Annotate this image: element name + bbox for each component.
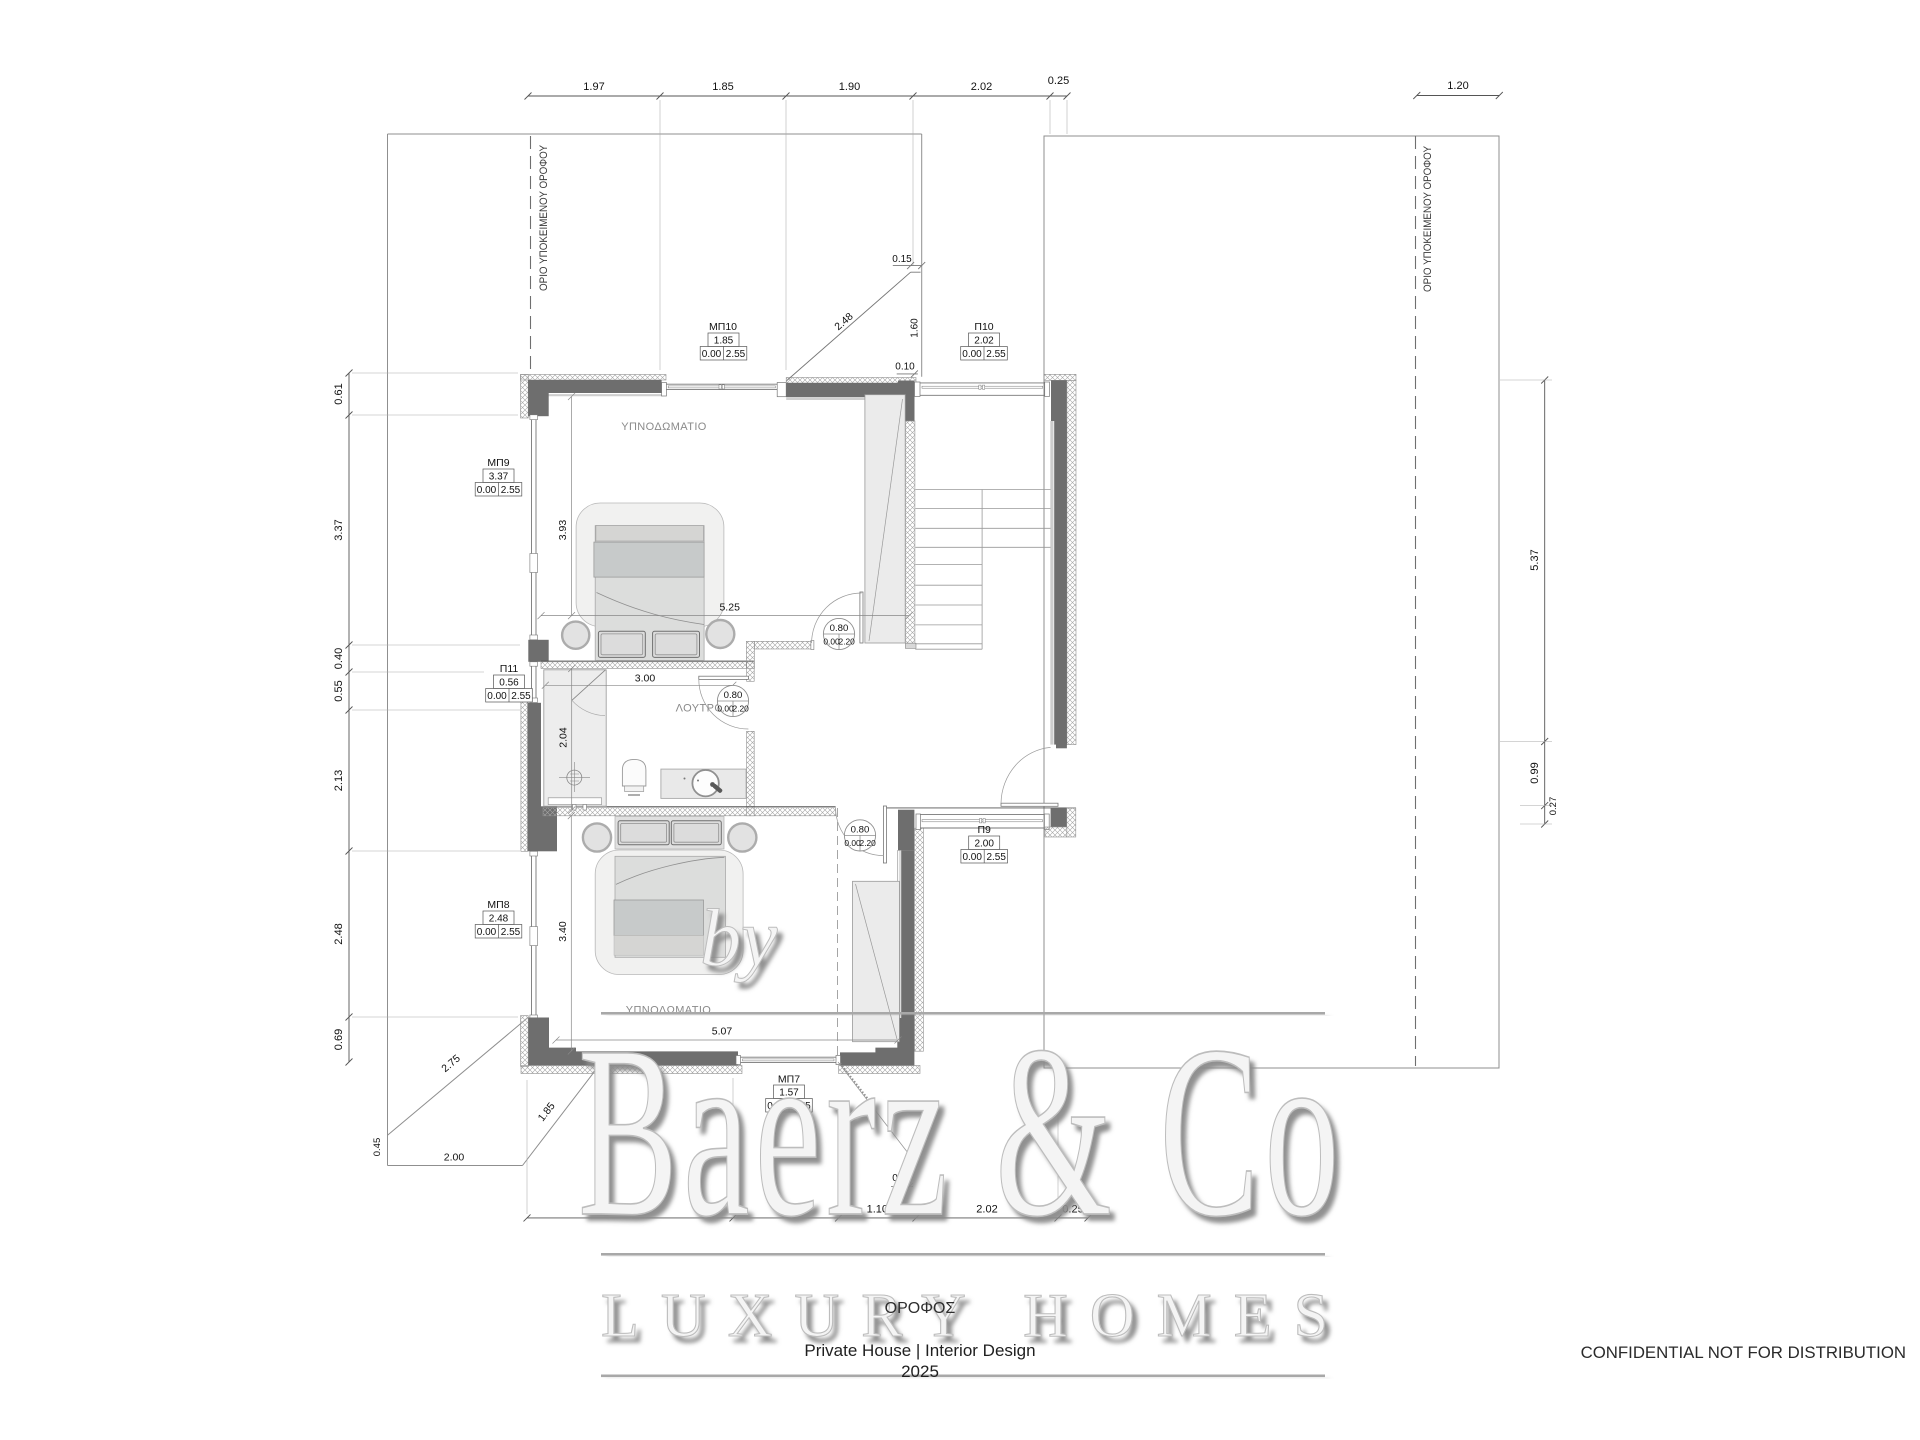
svg-text:Π10: Π10 xyxy=(974,321,993,333)
svg-text:ΟΡΙΟ ΥΠΟΚΕΙΜΕΝΟΥ ΟΡΟΦΟΥ: ΟΡΙΟ ΥΠΟΚΕΙΜΕΝΟΥ ΟΡΟΦΟΥ xyxy=(538,144,550,291)
svg-text:0.10: 0.10 xyxy=(895,362,915,373)
svg-text:0.00: 0.00 xyxy=(844,838,861,848)
svg-text:2.13: 2.13 xyxy=(333,770,345,791)
svg-text:1.97: 1.97 xyxy=(583,81,604,93)
svg-text:5.37: 5.37 xyxy=(1529,549,1541,570)
svg-text:0.00: 0.00 xyxy=(477,927,497,938)
svg-text:2.48: 2.48 xyxy=(489,914,509,925)
svg-text:3.37: 3.37 xyxy=(333,519,345,540)
svg-text:ΜΠ10: ΜΠ10 xyxy=(709,321,737,333)
svg-text:0.00: 0.00 xyxy=(823,637,840,647)
svg-text:ΛΟΥΤΡΟ: ΛΟΥΤΡΟ xyxy=(676,703,724,715)
svg-text:0.00: 0.00 xyxy=(477,485,497,496)
svg-text:1.60: 1.60 xyxy=(910,318,921,338)
svg-text:3.93: 3.93 xyxy=(557,520,569,541)
svg-text:2.48: 2.48 xyxy=(333,923,345,944)
svg-text:ΟΡΙΟ ΥΠΟΚΕΙΜΕΝΟΥ ΟΡΟΦΟΥ: ΟΡΙΟ ΥΠΟΚΕΙΜΕΝΟΥ ΟΡΟΦΟΥ xyxy=(1422,145,1434,292)
svg-text:0.99: 0.99 xyxy=(1529,762,1541,783)
svg-text:0.61: 0.61 xyxy=(333,383,345,404)
svg-text:0.00: 0.00 xyxy=(962,852,982,863)
svg-text:2.20: 2.20 xyxy=(839,637,856,647)
svg-text:ΜΠ9: ΜΠ9 xyxy=(487,457,509,469)
svg-text:0.45: 0.45 xyxy=(372,1138,383,1157)
svg-text:2.55: 2.55 xyxy=(501,927,521,938)
svg-text:1.85: 1.85 xyxy=(712,81,733,93)
svg-text:CONFIDENTIAL NOT FOR DISTRIBUT: CONFIDENTIAL NOT FOR DISTRIBUTION xyxy=(1581,1343,1906,1362)
svg-text:ΟΡΟΦΟΣ: ΟΡΟΦΟΣ xyxy=(885,1300,956,1317)
svg-text:0.40: 0.40 xyxy=(333,648,345,669)
svg-text:2.00: 2.00 xyxy=(974,839,994,850)
svg-text:0.00: 0.00 xyxy=(487,691,507,702)
svg-text:2.55: 2.55 xyxy=(986,852,1006,863)
svg-text:by: by xyxy=(700,892,778,983)
svg-text:1.90: 1.90 xyxy=(839,81,860,93)
svg-text:0.56: 0.56 xyxy=(499,678,519,689)
svg-text:3.37: 3.37 xyxy=(489,472,509,483)
svg-text:3.00: 3.00 xyxy=(635,673,656,685)
svg-text:0.80: 0.80 xyxy=(830,623,849,634)
svg-text:3.40: 3.40 xyxy=(557,921,569,942)
svg-text:2.55: 2.55 xyxy=(511,691,531,702)
svg-text:Private House | Interior Desig: Private House | Interior Design xyxy=(804,1341,1035,1360)
svg-text:0.00: 0.00 xyxy=(962,349,982,360)
svg-text:2.20: 2.20 xyxy=(733,704,750,714)
svg-text:0.15: 0.15 xyxy=(892,254,912,265)
svg-text:0.27: 0.27 xyxy=(1548,797,1559,816)
svg-text:2.55: 2.55 xyxy=(726,349,746,360)
svg-text:1.85: 1.85 xyxy=(714,336,734,347)
svg-text:Baerz & Co: Baerz & Co xyxy=(578,995,1344,1268)
svg-text:ΥΠΝΟΔΩΜΑΤΙΟ: ΥΠΝΟΔΩΜΑΤΙΟ xyxy=(621,421,707,433)
svg-text:Π9: Π9 xyxy=(977,824,991,836)
svg-text:0.00: 0.00 xyxy=(702,349,722,360)
svg-text:2.04: 2.04 xyxy=(557,727,569,748)
svg-text:0.25: 0.25 xyxy=(1048,75,1069,87)
svg-text:2.48: 2.48 xyxy=(832,310,855,333)
svg-text:2.02: 2.02 xyxy=(974,336,994,347)
svg-text:1.85: 1.85 xyxy=(536,1100,558,1124)
svg-text:Π11: Π11 xyxy=(500,663,519,675)
svg-text:2.55: 2.55 xyxy=(986,349,1006,360)
svg-text:2.00: 2.00 xyxy=(444,1152,465,1164)
svg-text:ΜΠ8: ΜΠ8 xyxy=(487,899,509,911)
svg-text:2.75: 2.75 xyxy=(439,1052,462,1074)
svg-text:0.80: 0.80 xyxy=(724,690,743,701)
svg-text:5.25: 5.25 xyxy=(719,602,740,614)
svg-text:1.20: 1.20 xyxy=(1447,80,1468,92)
svg-text:2.55: 2.55 xyxy=(501,485,521,496)
svg-text:LUXURY HOMES: LUXURY HOMES xyxy=(601,1282,1350,1350)
svg-text:0.00: 0.00 xyxy=(717,704,734,714)
svg-text:2.20: 2.20 xyxy=(860,838,877,848)
svg-text:2.02: 2.02 xyxy=(971,81,992,93)
svg-text:2025: 2025 xyxy=(901,1362,939,1381)
svg-text:0.80: 0.80 xyxy=(851,824,870,835)
svg-text:0.55: 0.55 xyxy=(333,680,345,701)
svg-text:0.69: 0.69 xyxy=(333,1029,345,1050)
